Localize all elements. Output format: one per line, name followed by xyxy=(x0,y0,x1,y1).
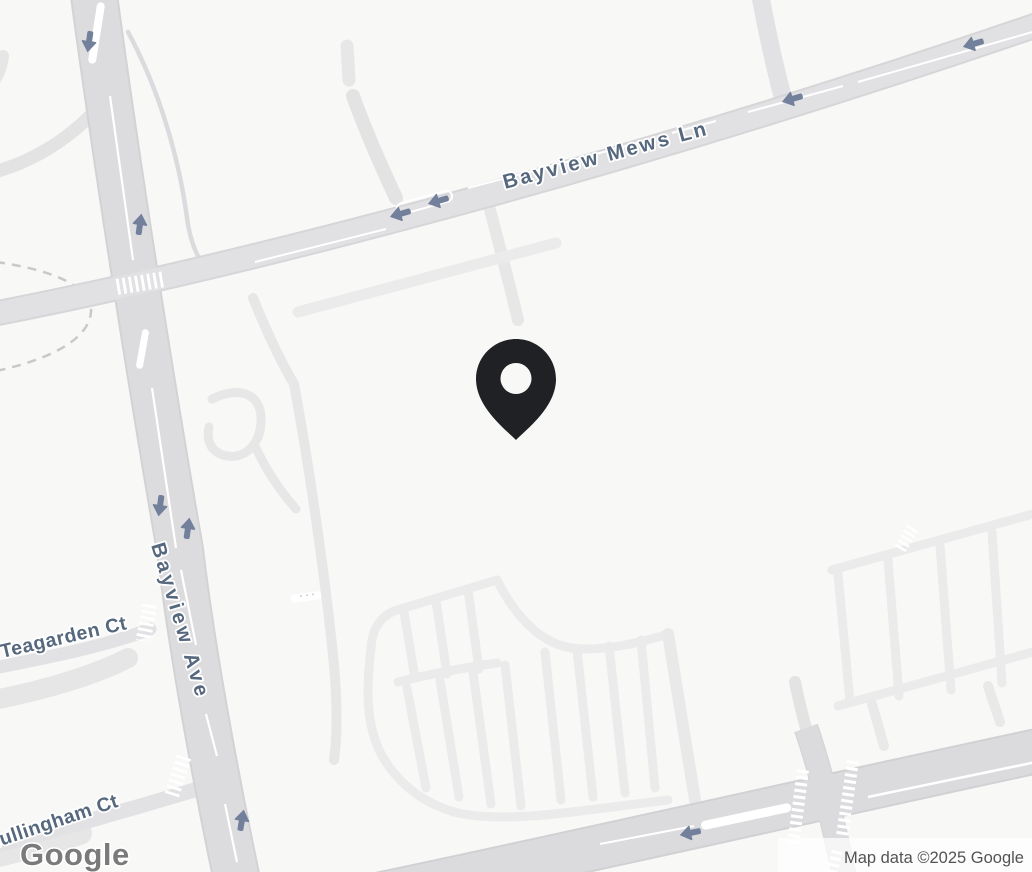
google-logo[interactable]: Google xyxy=(20,837,130,872)
map-canvas[interactable]: Bayview Mews Ln Bayview Ave Teagarden Ct… xyxy=(0,0,1032,872)
map-attribution: Map data ©2025 Google xyxy=(844,849,1024,867)
